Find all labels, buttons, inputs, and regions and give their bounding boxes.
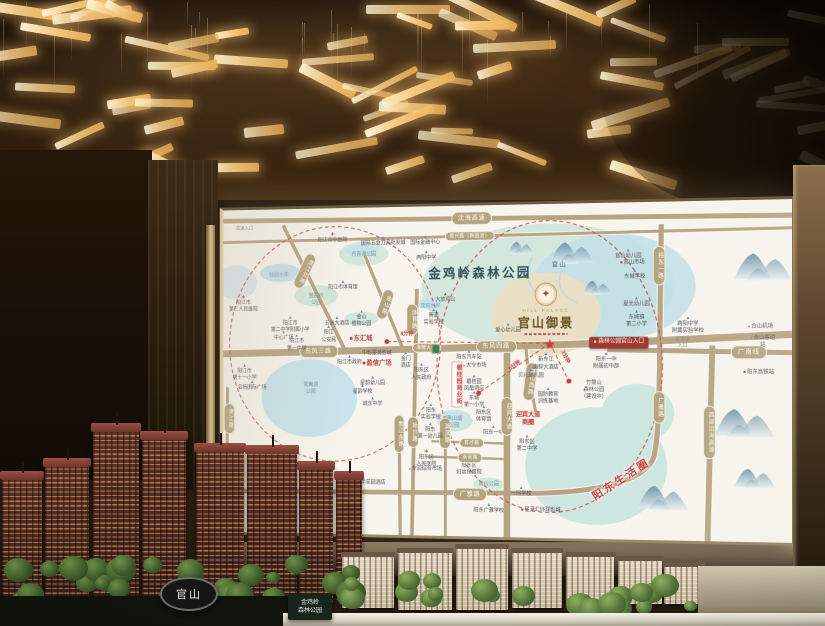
map-label-text: 阳东区 体育馆 [476, 410, 491, 423]
map-label-p: ▲碧桂园 凤凰酒店 [464, 374, 484, 393]
chandelier-crystal-bar [15, 82, 75, 93]
map-label-p: ▲金门 酒店 [401, 351, 411, 369]
map-label-pk: 燕山湖 公园 [447, 416, 462, 430]
map-label-text: 城东中学 [363, 401, 383, 407]
model-tree [336, 580, 366, 605]
map-label-v: 漠江北路 [292, 251, 318, 290]
model-tree [143, 557, 162, 573]
chandelier-crystal-bar [451, 163, 493, 184]
map-label-text: 合山客运站 [754, 335, 776, 348]
map-label-text: 永安路 [463, 455, 478, 461]
chandelier-wire [304, 23, 305, 58]
map-label-text: 一问学校 [511, 491, 532, 497]
chandelier-wire [522, 12, 523, 39]
map-label-text: 西部沿海高速 [707, 412, 713, 454]
map-label-pr: ■东汇城 [350, 335, 373, 344]
map-label-text: 阳江 公安局 [321, 330, 336, 342]
model-tree [83, 558, 110, 581]
map-label-text: 阳江市政府 [337, 360, 362, 366]
map-label-text: 两阳中学 附属实验学校 [672, 321, 704, 334]
map-label-text: 金门 酒店 [401, 356, 411, 369]
model-tree [420, 589, 442, 608]
map-label-hs: 振兴路（新国道） [445, 231, 495, 242]
chandelier-wire [191, 25, 192, 92]
map-label-text: 阳东汽车站 [456, 355, 481, 361]
map-label-text: 裕东一路 [657, 252, 663, 280]
map-label-text: 合山机场 [751, 324, 773, 330]
model-sign-guanshan-label: 官山 [176, 586, 202, 602]
map-label-st: ★ [544, 337, 556, 351]
map-label-text: 8分钟 [400, 331, 413, 337]
project-logo: ✦ HILL PALACE 官山御景 [518, 283, 574, 336]
map-label-text: 星港汇环球影城 [524, 507, 560, 513]
model-tree [95, 577, 110, 590]
map-label-p: ▲东城学校 [624, 268, 645, 280]
chandelier-crystal-bar [298, 63, 356, 99]
map-label-v: 新江东路 [393, 415, 405, 453]
map-label-pm: ■星港汇环球影城 [521, 507, 561, 515]
model-tree [340, 588, 365, 609]
right-wall [793, 165, 825, 585]
map-label-text: 东城镇 第二小学 [626, 314, 647, 327]
map-label-text: 丹青湖公园 [351, 251, 376, 257]
map-label-v: 裕东一路 [653, 246, 665, 286]
location-map-board: 沈海高速振兴路（新国道）高速入口✚阳江市中医院▲国际五金刀具批发城▲国际金融中心… [220, 196, 795, 546]
map-label-text: 振兴路（新国道） [449, 233, 490, 239]
map-label-pr: ■盈信广场 [362, 359, 391, 368]
model-tree [40, 561, 59, 577]
model-tree [337, 587, 361, 607]
model-tree [636, 600, 652, 614]
map-label-text: 名扬国际广场 [238, 385, 267, 391]
map-label-text: 大令市场 [466, 363, 486, 369]
map-label-p: ▲国际金融中心 [410, 235, 440, 247]
map-label-p: ▲两阳中学 [416, 250, 436, 262]
map-label-text: 阳东一中 附属初中部 [593, 356, 619, 369]
map-label-text: 国防教育 训练基地 [538, 392, 559, 405]
chandelier-crystal-bar [384, 155, 425, 175]
sales-center-scene: 沈海高速振兴路（新国道）高速入口✚阳江市中医院▲国际五金刀具批发城▲国际金融中心… [0, 0, 825, 626]
map-label-pc: ✚阳江市中医院 [318, 233, 347, 245]
map-label-p: ▲阳东区 人民政府 [411, 363, 431, 381]
chandelier-wire [121, 34, 122, 78]
map-label-text: 星光幼儿园 [623, 301, 649, 307]
map-poi-icon: ■ [350, 337, 353, 343]
road-sign-badge [432, 344, 440, 354]
chandelier-crystal-bar [477, 60, 513, 79]
left-wall [0, 150, 152, 480]
map-label-p: ▲东城镇 第二小学 [626, 309, 647, 328]
chandelier-crystal-bar [295, 137, 378, 159]
map-label-pk: 丹青湖公园 [351, 251, 376, 258]
model-tree [344, 577, 359, 590]
map-label-tt: 金鸡岭森林公园 [428, 264, 531, 282]
map-label-text: 广雅路 [460, 490, 481, 497]
map-label-text: 迎宾大道 [505, 403, 511, 430]
model-tree [106, 557, 136, 583]
chandelier-wire [302, 22, 303, 55]
model-sign-guanshan: 官山 [160, 577, 218, 611]
map-label-p: ▲阳东区 第二中学 [517, 434, 538, 453]
map-label-text: 阳江市 第三人民医院 [229, 300, 258, 312]
map-label-text: 官山市场 [624, 259, 645, 265]
map-label-text: 阳东区 妇幼保健院 [456, 462, 481, 475]
model-sign-forest-park-label: 金鸡岭 森林公园 [298, 599, 322, 616]
map-poi-icon: ■ [743, 370, 746, 375]
map-label-pk: 岗山公园 [479, 481, 499, 488]
map-label-text: 阳东广雅学校 [474, 508, 505, 514]
map-label-p: ▲城东中学 [363, 397, 383, 409]
map-label-text: 碧桂园 凤凰酒店 [464, 379, 484, 392]
map-label-text: 阳江市中医院 [318, 238, 347, 244]
model-tree [512, 586, 535, 606]
model-tree [630, 583, 653, 602]
map-label-text: 3分钟 [559, 349, 570, 364]
map-label-lk: 独园水库 [269, 273, 288, 280]
map-label-text: 东风四路 [482, 342, 510, 349]
chandelier-wire [462, 27, 463, 84]
map-label-text: 东汇城 [354, 336, 373, 343]
model-tree [59, 556, 89, 581]
map-label-text: 森林公园官山入口 [598, 339, 644, 345]
map-label-v: 西部沿海高速 [703, 406, 715, 460]
map-label-p: ▲一问学校 [511, 486, 532, 498]
model-tree [471, 579, 498, 602]
map-label-pl: 往高速 入口 [675, 337, 690, 350]
map-label-text: 广雅路 [657, 397, 663, 418]
map-label-text: 高速入口 [236, 226, 253, 232]
model-sign-forest-park: 金鸡岭 森林公园 [288, 594, 332, 620]
map-label-text: 迎宾大道 商圈 [516, 411, 540, 426]
model-residential-tower [2, 478, 42, 603]
project-logo-seal-icon: ✦ [535, 283, 557, 307]
chandelier-crystal-bar [0, 46, 38, 63]
chandelier-crystal-bar [211, 163, 259, 172]
chandelier-crystal-bar [148, 62, 216, 70]
map-label-pm: ■官山市场 [620, 259, 645, 266]
map-label-text: 贝儿幼儿园 [518, 373, 544, 379]
map-label-text: 岗山公园 [479, 481, 499, 487]
map-label-text: 阳东生活圈 [590, 456, 652, 503]
chandelier-crystal-bar [54, 121, 105, 149]
chandelier-crystal-bar [0, 109, 61, 130]
model-tree [4, 558, 33, 582]
map-label-rv: 碧桂园商业街 [452, 361, 463, 407]
model-tree [76, 574, 97, 592]
map-label-text: 始兴路 [411, 422, 416, 442]
map-label-text: 独园岭 公园 [309, 293, 324, 306]
map-label-pd: ●大令市场 [463, 363, 486, 370]
map-label-text: 育才路 [464, 440, 479, 446]
map-label-text: 碧桂园商业街 [455, 364, 461, 404]
map-label-text: 阳东区 人民政府 [411, 368, 431, 381]
chandelier-wire [207, 18, 208, 84]
map-label-h: 广雅路 [453, 488, 487, 501]
map-label-pd: ●东润综合市场 [409, 466, 442, 473]
map-label-zn: 阳东生活圈 [590, 455, 653, 503]
map-label-pc: ✚阳江市 第三人民医院 [229, 296, 258, 314]
map-label-text: 燕山湖 公园 [447, 416, 462, 429]
map-label-text: 漠江路 [227, 409, 232, 429]
map-label-tm: 3分钟 [558, 349, 570, 364]
map-label-text: 新江东路 [397, 421, 402, 448]
model-tree [395, 582, 418, 602]
map-label-text: 独园水库 [269, 273, 288, 279]
map-label-text: 往高速 入口 [675, 337, 690, 349]
map-label-text: 东城学校 [624, 273, 645, 279]
map-poi-icon: ■ [521, 507, 524, 512]
map-label-text: 国际金融中心 [410, 240, 440, 246]
map-label-mt: ▲大放鸡山 [435, 292, 455, 304]
map-label-p: ▲阳东 第一幼儿园 [418, 422, 443, 441]
project-logo-cn: 官山御景 [518, 313, 574, 332]
map-poi-icon: ■ [620, 259, 623, 264]
chandelier-wire [351, 27, 352, 79]
map-label-text: 大放鸡山 [435, 297, 455, 303]
map-label-pd: ●合山客运站 [748, 335, 777, 349]
map-label-en: ▲森林公园官山入口 [589, 337, 648, 349]
chandelier-wire [187, 2, 188, 28]
model-residential-tower [45, 465, 89, 603]
map-label-p: ▲名扬国际广场 [238, 380, 267, 391]
map-label-pd: ●广丰花园酒店 [353, 479, 386, 486]
map-label-text: 新东江 海鲜大酒店 [533, 357, 559, 370]
map-label-pt: ■阳东高铁站 [743, 369, 774, 376]
map-label-pk: 独园岭 公园 [309, 293, 324, 307]
map-label-h: 东风四路 [476, 340, 517, 353]
map-label-p: ▲阳江市体育馆 [328, 279, 357, 291]
map-label-text: ★ [544, 336, 556, 352]
map-label-p: ▲阳东 实验学校 [421, 403, 441, 422]
chandelier-crystal-bar [531, 0, 605, 27]
map-label-text: 中影星美影城 [362, 351, 392, 357]
map-label-text: 国际五金刀具批发城 [361, 240, 406, 246]
map-label-p: ▲菁源 实验学校 [424, 308, 444, 327]
seal-star-icon: ✦ [542, 289, 551, 300]
map-label-text: 金鸡岭森林公园 [428, 265, 531, 281]
map-label-text: 盈信广场 [366, 360, 391, 367]
model-tree [428, 587, 444, 600]
map-label-text: 阳东区 第二中学 [517, 439, 538, 452]
map-label-p: ▲阳东一中 附属初中部 [593, 351, 619, 370]
model-tree [485, 589, 500, 602]
map-label-text: 金山路 [380, 294, 392, 315]
map-label-p: ▲金山 植物公园 [352, 310, 372, 328]
map-label-v: 广雅路 [653, 391, 665, 424]
board-frame-edge [206, 225, 215, 543]
map-label-pd: ●中影星美影城 [359, 351, 392, 358]
map-label-pd: ●合山机场 [748, 324, 773, 331]
map-label-p: ▲阳江 公安局 [321, 325, 336, 343]
map-label-hs: 永安路 [458, 453, 482, 463]
map-label-p: ▲新东江 海鲜大酒店 [533, 352, 559, 371]
map-label-text: 两阳中学 [416, 255, 436, 261]
map-label-rm: 迎宾大道 商圈 [516, 411, 540, 427]
map-label-v: 金山路 [374, 287, 395, 321]
map-label-text: 阳江市 第一中学 [287, 339, 306, 351]
map-label-text: 沈海高速 [458, 214, 486, 221]
map-poi-icon: ■ [362, 361, 365, 367]
map-label-text: 阳东 实验学校 [421, 407, 441, 420]
map-label-text: 东润综合市场 [412, 466, 442, 472]
map-labels-layer: 沈海高速振兴路（新国道）高速入口✚阳江市中医院▲国际五金刀具批发城▲国际金融中心… [223, 199, 792, 543]
map-label-hs: 育才路 [460, 438, 484, 448]
chandelier-crystal-bar [215, 28, 249, 40]
model-tree [111, 555, 136, 576]
map-label-p: ▲阳东区 体育馆 [476, 405, 491, 424]
map-label-text: 广丰花园酒店 [356, 479, 386, 485]
model-tree [651, 574, 679, 598]
chandelier-wire [566, 13, 567, 55]
map-label-text: 体育路 [411, 309, 416, 329]
chandelier-crystal-bar [214, 54, 288, 68]
chandelier-crystal-bar [396, 12, 433, 30]
map-label-tm: 8分钟 [400, 331, 413, 338]
model-tree [640, 583, 663, 603]
model-ground-left [0, 596, 310, 626]
model-tree [684, 601, 696, 612]
map-label-p: ▲阳江市 第一中学 [287, 334, 306, 352]
map-label-v: 漠江路 [224, 403, 235, 434]
chandelier-crystal-bar [497, 142, 548, 167]
chandelier-crystal-bar [143, 116, 184, 134]
map-label-text: 菁源 实验学校 [424, 312, 444, 325]
map-label-pl: 高速入口 [236, 226, 253, 232]
map-label-text: 漠江北路 [298, 258, 314, 284]
map-label-h: 沈海高速 [452, 212, 493, 226]
map-label-p: ▲国际五金刀具批发城 [361, 235, 406, 247]
map-label-v: 迎宾大道 [501, 398, 513, 437]
map-label-p: ▲星韵学校 [353, 384, 373, 396]
map-label-text: 鸳鸯湖 公园 [303, 382, 318, 394]
project-logo-subtitle-rule [524, 333, 567, 335]
map-label-text: 阳东高铁站 [747, 369, 774, 375]
map-label-text: 竹筒山 森林公园 （建设中） [581, 380, 607, 400]
map-label-text: 东风三路 [305, 347, 332, 354]
model-tree [96, 575, 115, 591]
chandelier-crystal-bar [134, 99, 192, 108]
map-label-dk: 竹筒山 森林公园 （建设中） [581, 380, 607, 401]
map-label-p: ▲两阳中学 附属实验学校 [672, 316, 704, 335]
map-label-text: 阳东 第一幼儿园 [418, 427, 443, 440]
model-table-edge [283, 613, 825, 626]
map-label-text: 阳江市体育馆 [328, 284, 357, 290]
map-label-p: ▲阳东广雅学校 [474, 503, 505, 515]
map-label-text: 官山 [552, 261, 567, 268]
chandelier-crystal-bar [20, 22, 91, 42]
chandelier-crystal-bar [366, 5, 450, 14]
map-label-p: ▲星光幼儿园 [623, 296, 649, 308]
map-label-p: ▲国防教育 训练基地 [538, 387, 559, 406]
map-label-text: 金山 植物公园 [352, 314, 372, 327]
map-label-text: 星韵学校 [353, 389, 373, 395]
map-label-ml: 官山 [552, 260, 567, 269]
map-poi-icon: ▲ [593, 339, 598, 345]
model-tree [608, 586, 633, 607]
chandelier-crystal-bar [244, 124, 284, 138]
map-label-pk: 鸳鸯湖 公园 [303, 382, 318, 396]
chandelier-wire [199, 12, 200, 31]
